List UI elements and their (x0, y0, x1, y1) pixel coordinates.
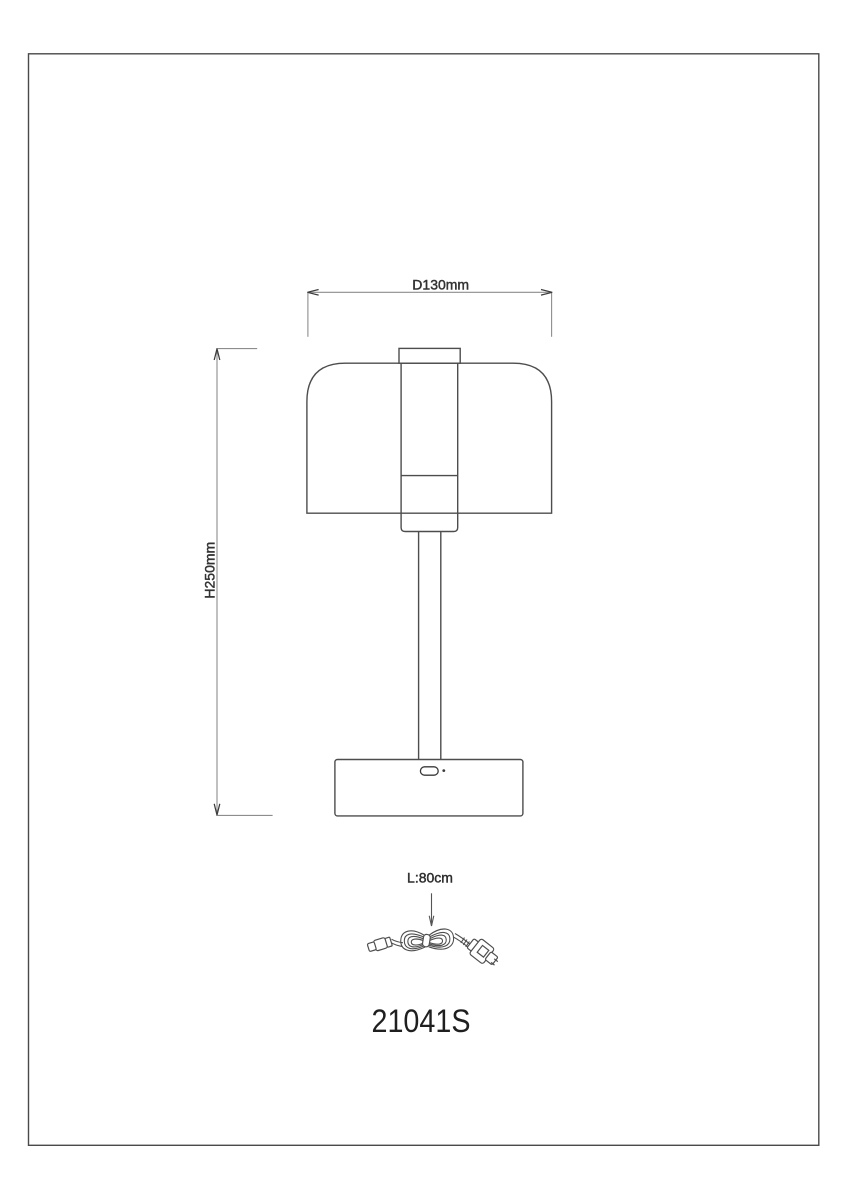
svg-text:H250mm: H250mm (202, 542, 218, 599)
svg-text:D130mm: D130mm (412, 277, 469, 293)
svg-text:L:80cm: L:80cm (407, 870, 453, 886)
svg-text:21041S: 21041S (372, 1003, 471, 1039)
